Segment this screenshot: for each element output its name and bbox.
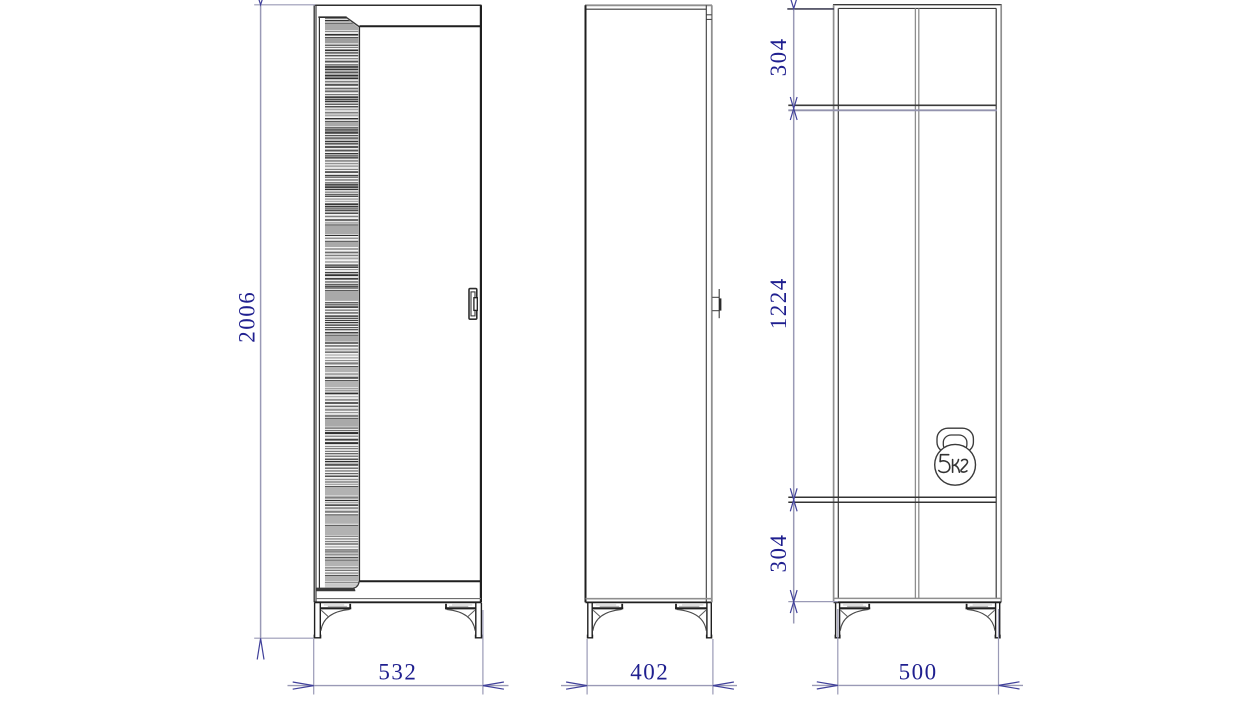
svg-text:402: 402 — [630, 659, 669, 684]
svg-text:1224: 1224 — [766, 277, 791, 329]
svg-text:500: 500 — [899, 659, 938, 684]
svg-text:532: 532 — [378, 659, 417, 684]
svg-text:304: 304 — [766, 534, 791, 573]
svg-text:304: 304 — [766, 37, 791, 76]
svg-text:2006: 2006 — [235, 291, 260, 343]
